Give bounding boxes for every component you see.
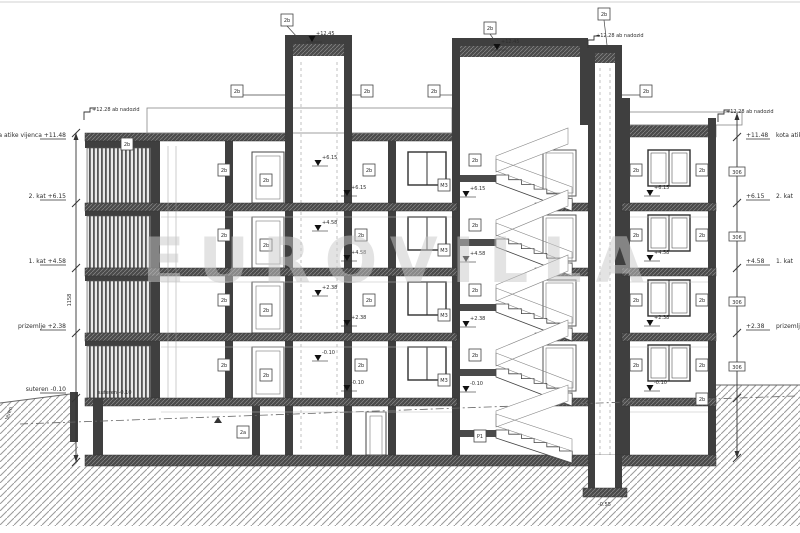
- svg-text:kota atike vijenca: kota atike vijenca: [776, 132, 800, 139]
- svg-text:2b: 2b: [366, 298, 372, 304]
- ref-marker: 2a: [237, 426, 249, 438]
- dimension-value-box: 306: [729, 297, 745, 306]
- svg-text:306: 306: [732, 365, 742, 371]
- garage-column: [252, 406, 260, 455]
- svg-text:prizemlje +2.38: prizemlje +2.38: [18, 323, 66, 330]
- svg-text:2b: 2b: [487, 26, 493, 32]
- stair-landing: [460, 175, 496, 182]
- svg-text:+6.15: +6.15: [470, 186, 485, 192]
- nadozid-label: +12.28 ab nadozid: [726, 109, 774, 115]
- svg-text:2b: 2b: [643, 89, 649, 95]
- floor-slab: [622, 203, 716, 211]
- svg-text:P1: P1: [477, 434, 483, 440]
- level-label: prizemlje +2.38: [18, 323, 66, 330]
- level-label: 1. kat +4.58: [29, 258, 67, 265]
- ref-marker: 2b: [696, 164, 708, 176]
- svg-text:2b: 2b: [221, 298, 227, 304]
- ref-marker: 2b: [260, 304, 272, 316]
- svg-text:2b: 2b: [699, 168, 705, 174]
- svg-text:2b: 2b: [699, 233, 705, 239]
- elevation-marker: +2.38: [460, 316, 485, 327]
- svg-text:2b: 2b: [472, 353, 478, 359]
- svg-text:suteren -0.10: suteren -0.10: [26, 386, 66, 393]
- ref-marker: 2b: [218, 359, 230, 371]
- svg-text:2b: 2b: [263, 178, 269, 184]
- svg-text:306: 306: [732, 300, 742, 306]
- svg-text:2b: 2b: [234, 89, 240, 95]
- svg-text:kota atike vijenca +11.48: kota atike vijenca +11.48: [0, 132, 66, 139]
- floor-slab: [622, 333, 716, 341]
- svg-text:+2.38: +2.38: [351, 315, 366, 321]
- svg-text:+12.45: +12.45: [316, 31, 335, 37]
- svg-text:prizemlje: prizemlje: [776, 323, 800, 330]
- svg-text:M3: M3: [440, 313, 448, 319]
- stair-landing: [460, 369, 496, 376]
- svg-text:2b: 2b: [263, 308, 269, 314]
- level-label: +4.581. kat: [746, 258, 794, 265]
- svg-text:2b: 2b: [431, 89, 437, 95]
- svg-text:2a: 2a: [240, 430, 246, 436]
- dimension-value-box: 306: [729, 362, 745, 371]
- level-labels-left: kota atike vijenca +11.482. kat +6.151. …: [0, 132, 66, 393]
- svg-text:2b: 2b: [472, 158, 478, 164]
- svg-text:-0.10: -0.10: [470, 381, 483, 387]
- svg-text:+2.38: +2.38: [746, 323, 765, 330]
- svg-text:2b: 2b: [364, 89, 370, 95]
- ref-marker: M3: [438, 179, 450, 191]
- svg-text:2b: 2b: [124, 142, 130, 148]
- ref-marker: 2b: [121, 138, 133, 150]
- ref-marker: 2b: [218, 164, 230, 176]
- svg-text:1. kat +4.58: 1. kat +4.58: [29, 258, 67, 265]
- ref-marker: 2b: [469, 154, 481, 166]
- parapet-outline: [147, 108, 452, 133]
- ref-marker: 2b: [630, 359, 642, 371]
- parapet-outline: [628, 112, 742, 125]
- watermark-text: EUROVILLA: [142, 224, 658, 297]
- nadozid-label: +12.28 ab nadozid: [92, 107, 140, 113]
- svg-text:+6.15: +6.15: [351, 185, 366, 191]
- floor-slab: [85, 333, 457, 341]
- svg-text:-0.10: -0.10: [351, 380, 364, 386]
- svg-text:2b: 2b: [699, 397, 705, 403]
- svg-text:-0.10: -0.10: [322, 350, 335, 356]
- svg-text:-0.10: -0.10: [654, 380, 667, 386]
- right-roof-slab: [622, 125, 716, 137]
- ref-marker: 2b: [363, 164, 375, 176]
- svg-text:2b: 2b: [366, 168, 372, 174]
- nadozid-label: +12.28 ab nadozid: [596, 33, 644, 39]
- svg-text:+2.38: +2.38: [470, 316, 485, 322]
- svg-text:+11.48: +11.48: [746, 132, 768, 139]
- level-label: +11.48kota atike vijenca: [746, 132, 800, 139]
- svg-text:M3: M3: [440, 378, 448, 384]
- level-label: 2. kat +6.15: [29, 193, 67, 200]
- ref-marker: 2b: [231, 85, 243, 97]
- overall-dimension: 1158: [67, 294, 73, 307]
- elevation-marker: +6.15: [312, 155, 337, 166]
- architectural-section-drawing: 1158 +12.28 ab nadozid +12.28 ab nadozid…: [0, 0, 800, 533]
- ref-marker: 2b: [640, 85, 652, 97]
- ref-marker: 2b: [630, 164, 642, 176]
- stair-landing: [460, 304, 496, 311]
- ref-marker: 2b: [469, 349, 481, 361]
- elevator-pit: [595, 455, 615, 488]
- ref-marker: 2b: [484, 22, 496, 34]
- svg-text:2b: 2b: [221, 168, 227, 174]
- dimension-value-box: 306: [729, 232, 745, 241]
- ref-marker: 2b: [361, 85, 373, 97]
- svg-text:2b: 2b: [633, 298, 639, 304]
- svg-text:1. kat: 1. kat: [776, 258, 794, 265]
- wall: [388, 141, 396, 466]
- level-labels-right: +11.48kota atike vijenca+6.152. kat+4.58…: [746, 132, 800, 330]
- svg-text:2b: 2b: [633, 363, 639, 369]
- ref-marker: M3: [438, 374, 450, 386]
- svg-text:2b: 2b: [699, 363, 705, 369]
- nadozid-annotations: +12.28 ab nadozid +12.28 ab nadozid +12.…: [84, 33, 774, 122]
- svg-text:2b: 2b: [601, 12, 607, 18]
- floor-slab: [85, 398, 457, 406]
- level-label: kota atike vijenca +11.48: [0, 132, 66, 139]
- svg-text:2b: 2b: [633, 168, 639, 174]
- svg-text:2. kat +6.15: 2. kat +6.15: [29, 193, 67, 200]
- slabs: [85, 108, 742, 141]
- ref-marker: 2b: [428, 85, 440, 97]
- svg-text:+6.15: +6.15: [654, 185, 669, 191]
- svg-text:2b: 2b: [221, 363, 227, 369]
- suteren-label: suteren -0.10: [98, 390, 132, 396]
- svg-text:+6.15: +6.15: [322, 155, 337, 161]
- svg-text:+6.15: +6.15: [746, 193, 765, 200]
- level-label: +2.38prizemlje: [746, 323, 800, 330]
- level-label: suteren -0.10: [26, 386, 66, 393]
- svg-text:2b: 2b: [263, 373, 269, 379]
- floor-slab: [85, 203, 457, 211]
- svg-text:2b: 2b: [699, 298, 705, 304]
- svg-text:+2.38: +2.38: [654, 315, 669, 321]
- louver-screen: [87, 148, 151, 203]
- svg-text:2b: 2b: [284, 18, 290, 24]
- basement-door: [366, 412, 386, 455]
- ref-marker: 2b: [598, 8, 610, 20]
- svg-text:+4.58: +4.58: [746, 258, 765, 265]
- ref-marker: 2b: [260, 174, 272, 186]
- pit-level-label: -0.55: [598, 502, 611, 508]
- elevation-marker: -0.10: [312, 350, 335, 361]
- ref-marker: 2b: [696, 294, 708, 306]
- stair-window: [543, 150, 576, 196]
- ref-marker: M3: [438, 309, 450, 321]
- ref-marker: P1: [474, 430, 486, 442]
- ref-marker: 2b: [696, 359, 708, 371]
- stair-window: [543, 345, 576, 391]
- ref-marker: 2b: [260, 369, 272, 381]
- svg-text:306: 306: [732, 235, 742, 241]
- ref-marker: 2b: [355, 359, 367, 371]
- ref-marker: 2b: [696, 229, 708, 241]
- dimension-value-box: 306: [729, 167, 745, 176]
- svg-text:306: 306: [732, 170, 742, 176]
- elevation-marker: -0.10: [460, 381, 483, 392]
- elevation-marker: +6.15: [460, 186, 485, 197]
- svg-text:M3: M3: [440, 183, 448, 189]
- level-label: +6.152. kat: [746, 193, 794, 200]
- ref-marker: 2b: [696, 393, 708, 405]
- ref-marker: 2b: [281, 14, 293, 26]
- svg-text:2b: 2b: [358, 363, 364, 369]
- svg-text:+12.45: +12.45: [501, 39, 520, 45]
- section-drawing-svg: 1158 +12.28 ab nadozid +12.28 ab nadozid…: [0, 0, 800, 533]
- svg-text:2. kat: 2. kat: [776, 193, 794, 200]
